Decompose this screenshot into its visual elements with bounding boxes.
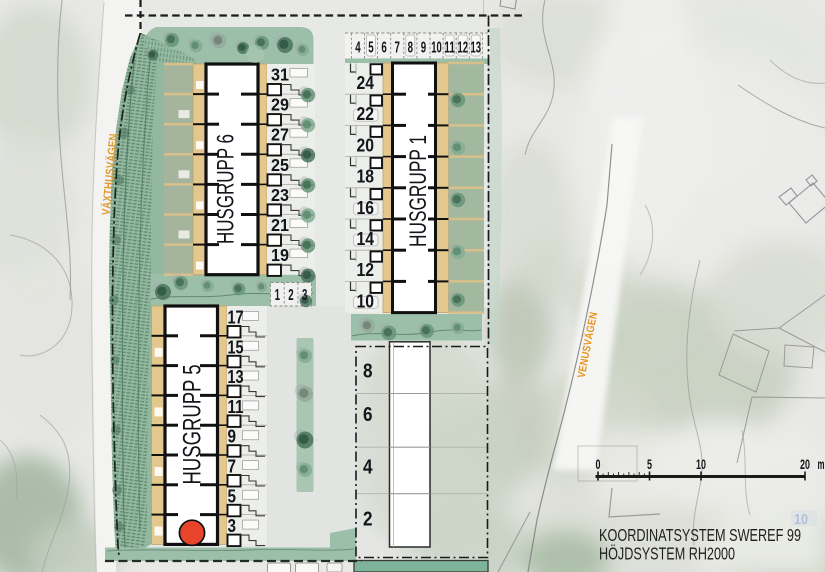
svg-text:11: 11 — [444, 39, 455, 56]
svg-text:17: 17 — [228, 307, 244, 328]
svg-text:10: 10 — [696, 456, 706, 472]
svg-text:3: 3 — [302, 287, 307, 304]
svg-text:21: 21 — [271, 215, 289, 235]
svg-text:HÖJDSYSTEM RH2000: HÖJDSYSTEM RH2000 — [599, 544, 735, 564]
svg-text:10: 10 — [431, 39, 442, 56]
svg-text:29: 29 — [271, 95, 289, 115]
svg-text:HUSGRUPP 6: HUSGRUPP 6 — [213, 134, 240, 244]
svg-text:20: 20 — [800, 456, 810, 472]
svg-text:2: 2 — [288, 287, 293, 304]
svg-text:8: 8 — [408, 39, 413, 56]
svg-text:7: 7 — [395, 39, 400, 56]
svg-text:1: 1 — [275, 287, 280, 304]
svg-text:19: 19 — [271, 245, 289, 265]
svg-text:10: 10 — [357, 290, 375, 311]
svg-text:HUSGRUPP 1: HUSGRUPP 1 — [405, 135, 432, 247]
svg-text:13: 13 — [471, 39, 482, 56]
svg-text:6: 6 — [363, 404, 373, 426]
svg-text:18: 18 — [357, 166, 375, 187]
svg-text:2: 2 — [363, 509, 373, 531]
svg-text:5: 5 — [647, 456, 652, 472]
svg-text:8: 8 — [363, 360, 373, 382]
svg-text:25: 25 — [271, 155, 289, 175]
svg-text:HUSGRUPP 5: HUSGRUPP 5 — [179, 365, 207, 485]
svg-text:22: 22 — [357, 103, 375, 124]
svg-text:12: 12 — [357, 259, 375, 280]
svg-text:31: 31 — [271, 65, 289, 85]
svg-text:9: 9 — [228, 426, 237, 447]
svg-text:0: 0 — [596, 456, 601, 472]
svg-text:6: 6 — [381, 39, 386, 56]
svg-text:11: 11 — [228, 396, 244, 417]
svg-text:9: 9 — [421, 39, 426, 56]
svg-text:5: 5 — [368, 39, 373, 56]
svg-text:16: 16 — [357, 197, 375, 218]
svg-text:24: 24 — [357, 72, 375, 93]
svg-text:23: 23 — [271, 185, 289, 205]
svg-text:5: 5 — [228, 485, 237, 506]
svg-text:3: 3 — [228, 515, 237, 536]
svg-text:13: 13 — [228, 366, 244, 387]
svg-text:m: m — [818, 456, 825, 472]
svg-text:KOORDINATSYSTEM SWEREF 99: KOORDINATSYSTEM SWEREF 99 — [599, 525, 801, 545]
svg-text:7: 7 — [228, 456, 237, 477]
svg-text:4: 4 — [363, 456, 373, 478]
svg-text:15: 15 — [228, 336, 244, 357]
svg-text:14: 14 — [357, 228, 375, 249]
svg-text:27: 27 — [271, 125, 289, 145]
svg-text:4: 4 — [355, 39, 360, 56]
svg-text:20: 20 — [357, 134, 375, 155]
svg-text:12: 12 — [457, 39, 468, 56]
